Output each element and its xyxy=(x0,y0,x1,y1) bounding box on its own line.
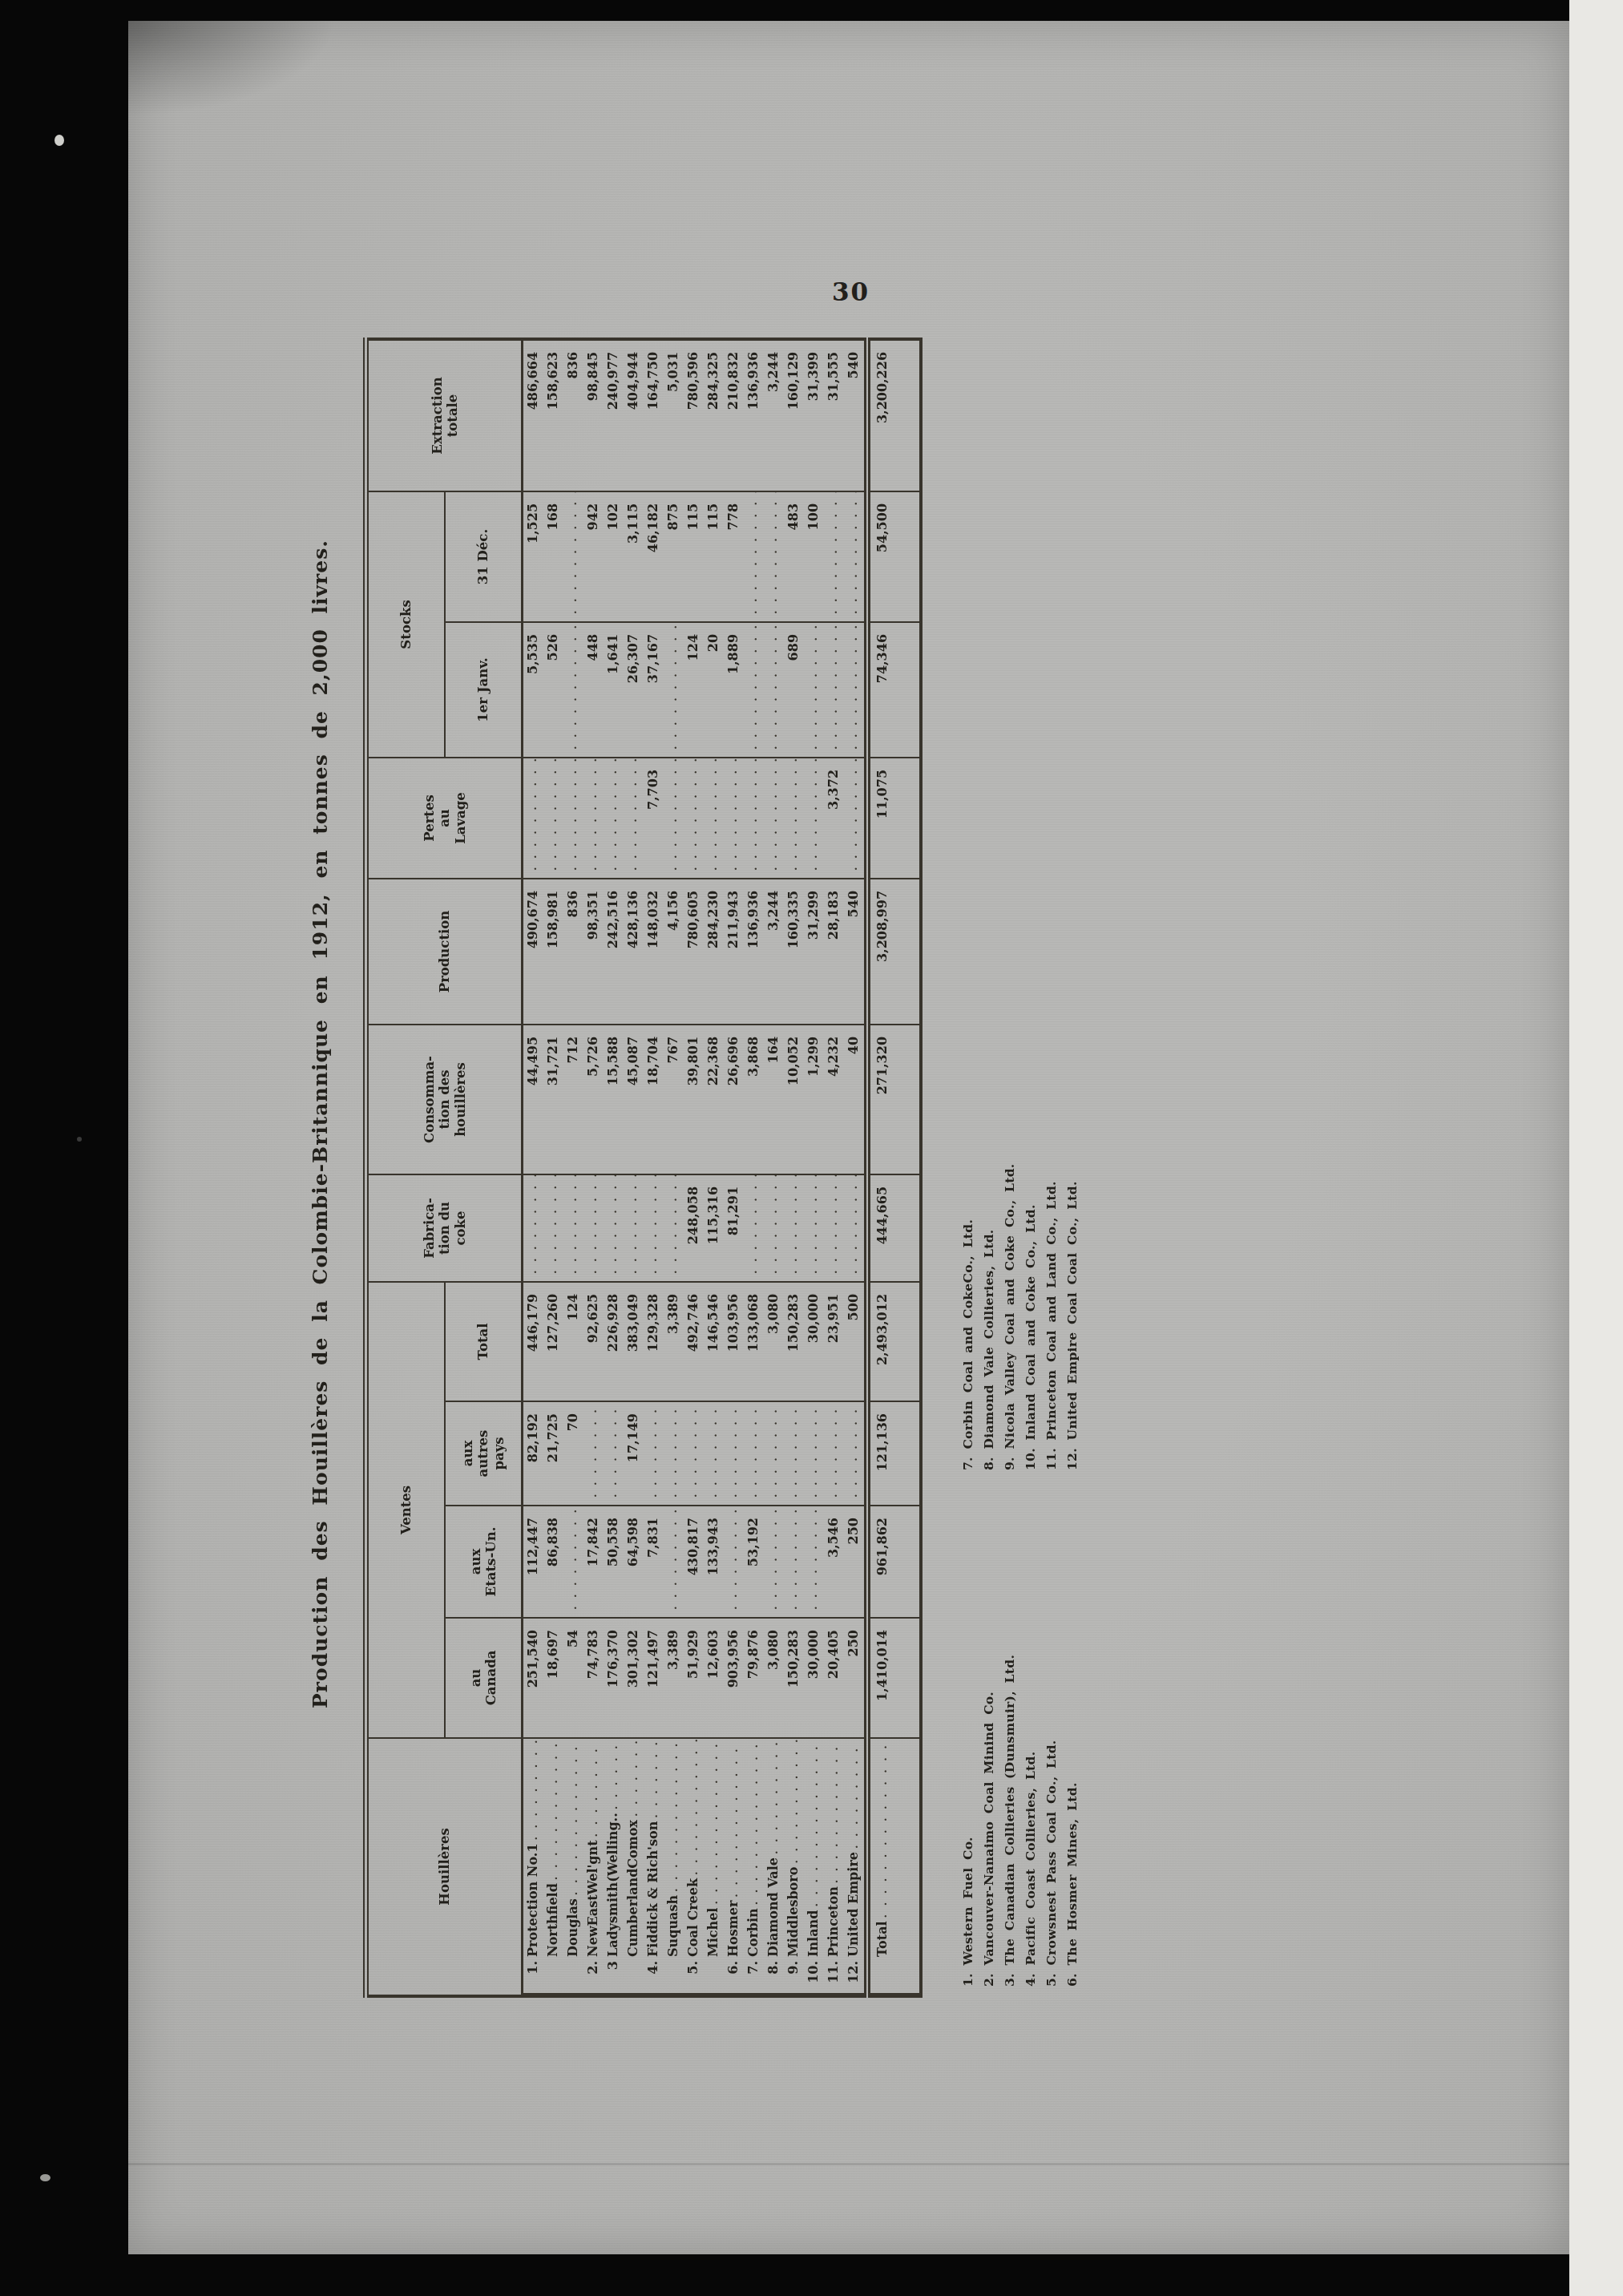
table-row: 4. Fiddick & Rich'son 121,497 7,831 129,… xyxy=(644,339,664,1996)
total-consommation: 271,320 xyxy=(867,1025,921,1174)
row-label-cell: CumberlandComox xyxy=(624,1739,644,1995)
scanned-page-photostat: { "page": { "number": "30" }, "title": "… xyxy=(0,0,1623,2296)
cell-aux-autres-pays xyxy=(764,1401,784,1506)
cell-total-ventes: 92,625 xyxy=(583,1282,604,1401)
cell-au-canada: 74,783 xyxy=(583,1618,604,1738)
cell-extraction: 284,325 xyxy=(704,339,724,491)
cell-31-dec: 483 xyxy=(784,491,804,622)
leader-dots xyxy=(564,1740,583,1898)
column-header-pertes: Pertes au Lavage xyxy=(366,758,523,879)
cell-1er-janv xyxy=(664,622,684,758)
cell-aux-etats-un xyxy=(724,1506,744,1618)
cell-production: 136,936 xyxy=(744,879,764,1025)
row-footnote-number: 1. xyxy=(524,1957,542,1990)
row-label-cell: Northfield xyxy=(543,1739,563,1995)
cell-production: 160,335 xyxy=(784,879,804,1025)
cell-production: 98,351 xyxy=(583,879,604,1025)
cell-coke xyxy=(624,1174,644,1282)
cell-aux-autres-pays: 82,192 xyxy=(523,1401,544,1506)
cell-au-canada: 3,389 xyxy=(664,1618,684,1738)
cell-aux-etats-un: 7,831 xyxy=(644,1506,664,1618)
cell-1er-janv: 526 xyxy=(543,622,563,758)
cell-aux-etats-un: 250 xyxy=(844,1506,867,1618)
cell-extraction: 486,664 xyxy=(523,339,544,491)
cell-pertes xyxy=(523,758,544,879)
cell-total-ventes: 127,260 xyxy=(543,1282,563,1401)
cell-coke xyxy=(824,1174,844,1282)
row-label-cell: 2. NewEastWel'gnt xyxy=(583,1739,604,1995)
row-label-cell: 9. Middlesboro xyxy=(784,1739,804,1995)
cell-1er-janv xyxy=(824,622,844,758)
cell-extraction: 98,845 xyxy=(583,339,604,491)
cell-consommation: 767 xyxy=(664,1025,684,1174)
cell-pertes: 7,703 xyxy=(644,758,664,879)
cell-1er-janv: 26,307 xyxy=(624,622,644,758)
cell-aux-etats-un xyxy=(804,1506,824,1618)
cell-pertes xyxy=(784,758,804,879)
footnote-column-2: 7. Corbin Coal and CokeCo., Ltd.8. Diamo… xyxy=(958,893,1083,1470)
cell-total-ventes: 500 xyxy=(844,1282,867,1401)
cell-aux-autres-pays xyxy=(844,1401,867,1506)
table-row: 3 Ladysmith(Welling.. 176,370 50,558 226… xyxy=(604,339,624,1996)
cell-au-canada: 20,405 xyxy=(824,1618,844,1738)
cell-1er-janv xyxy=(563,622,583,758)
cell-extraction: 780,596 xyxy=(684,339,704,491)
cell-aux-autres-pays xyxy=(724,1401,744,1506)
cell-consommation: 18,704 xyxy=(644,1025,664,1174)
cell-total-ventes: 23,951 xyxy=(824,1282,844,1401)
cell-1er-janv: 448 xyxy=(583,622,604,758)
cell-pertes xyxy=(844,758,867,879)
cell-consommation: 10,052 xyxy=(784,1025,804,1174)
leader-dots xyxy=(664,1740,683,1895)
cell-31-dec: 102 xyxy=(604,491,624,622)
leader-dots xyxy=(604,1740,623,1813)
leader-dots xyxy=(845,1740,863,1852)
row-label-cell: Douglas xyxy=(563,1739,583,1995)
cell-production: 780,605 xyxy=(684,879,704,1025)
cell-31-dec xyxy=(563,491,583,622)
cell-production: 428,136 xyxy=(624,879,644,1025)
row-footnote-number: 6. xyxy=(725,1957,742,1990)
leader-dots xyxy=(825,1740,843,1886)
total-1er-janv: 74,346 xyxy=(867,622,921,758)
cell-coke xyxy=(804,1174,824,1282)
leader-dots xyxy=(725,1740,743,1901)
footnote-line: 5. Crowsnest Pass Coal Co., Ltd. xyxy=(1041,1473,1062,1987)
cell-extraction: 136,936 xyxy=(744,339,764,491)
cell-1er-janv: 5,535 xyxy=(523,622,544,758)
cell-pertes xyxy=(583,758,604,879)
cell-consommation: 3,868 xyxy=(744,1025,764,1174)
group-header-stocks: Stocks xyxy=(366,491,446,758)
leader-dots xyxy=(584,1740,603,1840)
cell-aux-etats-un: 53,192 xyxy=(744,1506,764,1618)
cell-31-dec: 100 xyxy=(804,491,824,622)
footnote-line: 12. United Empire Coal Coal Co., Ltd. xyxy=(1062,893,1083,1470)
cell-coke xyxy=(543,1174,563,1282)
cell-aux-etats-un: 3,546 xyxy=(824,1506,844,1618)
cell-extraction: 31,399 xyxy=(804,339,824,491)
table-row: Douglas 54 70 124 712 836 836 xyxy=(563,339,583,1996)
footnote-line: 8. Diamond Vale Collieries, Ltd. xyxy=(979,893,999,1470)
leader-dots xyxy=(805,1740,823,1910)
leader-dots xyxy=(785,1740,803,1867)
cell-aux-autres-pays xyxy=(824,1401,844,1506)
total-ventes: 2,493,012 xyxy=(867,1282,921,1401)
cell-aux-etats-un: 133,943 xyxy=(704,1506,724,1618)
row-label-cell: 11. Princeton xyxy=(824,1739,844,1995)
cell-pertes xyxy=(664,758,684,879)
cell-consommation: 40 xyxy=(844,1025,867,1174)
cell-1er-janv: 1,641 xyxy=(604,622,624,758)
cell-consommation: 31,721 xyxy=(543,1025,563,1174)
mine-name: Princeton xyxy=(825,1886,842,1957)
leader-dots xyxy=(745,1740,763,1908)
cell-aux-etats-un: 86,838 xyxy=(543,1506,563,1618)
cell-coke xyxy=(644,1174,664,1282)
cell-coke xyxy=(844,1174,867,1282)
total-row: Total 1,410,014 961,862 121,136 2,493,01… xyxy=(867,339,921,1996)
cell-1er-janv: 124 xyxy=(684,622,704,758)
cell-pertes xyxy=(543,758,563,879)
cell-1er-janv xyxy=(764,622,784,758)
total-label: Total xyxy=(874,1921,891,1957)
cell-extraction: 210,832 xyxy=(724,339,744,491)
cell-total-ventes: 146,546 xyxy=(704,1282,724,1401)
table-row: 11. Princeton 20,405 3,546 23,951 4,232 … xyxy=(824,339,844,1996)
cell-production: 836 xyxy=(563,879,583,1025)
cell-extraction: 404,944 xyxy=(624,339,644,491)
footnote-line: 9. Nicola Valley Coal and Coke Co., Ltd. xyxy=(999,893,1020,1470)
row-label-cell: 7. Corbin xyxy=(744,1739,764,1995)
cell-consommation: 164 xyxy=(764,1025,784,1174)
cell-coke xyxy=(764,1174,784,1282)
scan-fold-line xyxy=(128,2163,1569,2165)
total-au-canada: 1,410,014 xyxy=(867,1618,921,1738)
column-header-houilleres: Houillères xyxy=(366,1738,523,1996)
mine-name: Diamond Vale xyxy=(765,1857,782,1957)
cell-consommation: 15,588 xyxy=(604,1025,624,1174)
cell-consommation: 44,495 xyxy=(523,1025,544,1174)
cell-au-canada: 150,283 xyxy=(784,1618,804,1738)
table-row: 10. Inland 30,000 30,000 1,299 31,299 10… xyxy=(804,339,824,1996)
scan-smudge xyxy=(128,21,337,117)
cell-aux-autres-pays xyxy=(684,1401,704,1506)
column-header-aux-etats-un: aux Etats-Un. xyxy=(445,1506,523,1618)
table-row: CumberlandComox 301,302 64,598 17,149 38… xyxy=(624,339,644,1996)
mine-name: Suquash xyxy=(664,1895,682,1957)
row-footnote-number: 10. xyxy=(805,1957,822,1990)
row-label-cell: Michel xyxy=(704,1739,724,1995)
cell-aux-autres-pays: 17,149 xyxy=(624,1401,644,1506)
cell-aux-etats-un: 112,447 xyxy=(523,1506,544,1618)
production-table: Houillères Ventes Fabrica- tion du coke … xyxy=(363,338,923,1998)
cell-31-dec: 875 xyxy=(664,491,684,622)
cell-production: 284,230 xyxy=(704,879,724,1025)
group-header-ventes: Ventes xyxy=(366,1282,446,1738)
cell-au-canada: 3,080 xyxy=(764,1618,784,1738)
cell-au-canada: 79,876 xyxy=(744,1618,764,1738)
cell-extraction: 160,129 xyxy=(784,339,804,491)
cell-aux-etats-un xyxy=(784,1506,804,1618)
cell-total-ventes: 226,928 xyxy=(604,1282,624,1401)
footnote-line: 7. Corbin Coal and CokeCo., Ltd. xyxy=(958,893,979,1470)
cell-aux-autres-pays xyxy=(664,1401,684,1506)
leader-dots xyxy=(765,1740,783,1857)
cell-total-ventes: 150,283 xyxy=(784,1282,804,1401)
scan-right-margin xyxy=(1569,0,1623,2296)
cell-production: 540 xyxy=(844,879,867,1025)
cell-aux-etats-un: 50,558 xyxy=(604,1506,624,1618)
cell-consommation: 4,232 xyxy=(824,1025,844,1174)
cell-31-dec xyxy=(764,491,784,622)
row-label-cell: 10. Inland xyxy=(804,1739,824,1995)
row-footnote-number: 11. xyxy=(825,1957,842,1990)
column-header-production: Production xyxy=(366,879,523,1025)
cell-production: 490,674 xyxy=(523,879,544,1025)
cell-au-canada: 54 xyxy=(563,1618,583,1738)
cell-coke xyxy=(563,1174,583,1282)
cell-total-ventes: 103,956 xyxy=(724,1282,744,1401)
footnote-line: 4. Pacific Coast Collieries, Ltd. xyxy=(1020,1473,1041,1987)
cell-pertes: 3,372 xyxy=(824,758,844,879)
mine-name: Corbin xyxy=(745,1908,762,1957)
row-label-cell: Suquash xyxy=(664,1739,684,1995)
mine-name: Ladysmith(Welling.. xyxy=(604,1813,622,1957)
cell-au-canada: 18,697 xyxy=(543,1618,563,1738)
leader-dots xyxy=(644,1740,663,1821)
cell-consommation: 45,087 xyxy=(624,1025,644,1174)
cell-coke: 248,058 xyxy=(684,1174,704,1282)
cell-au-canada: 121,497 xyxy=(644,1618,664,1738)
row-footnote-number: 9. xyxy=(785,1957,802,1990)
cell-aux-etats-un: 64,598 xyxy=(624,1506,644,1618)
cell-31-dec: 1,525 xyxy=(523,491,544,622)
cell-au-canada: 51,929 xyxy=(684,1618,704,1738)
cell-aux-autres-pays: 21,725 xyxy=(543,1401,563,1506)
table-row: 8. Diamond Vale 3,080 3,080 164 3,244 3,… xyxy=(764,339,784,1996)
page-number: 30 xyxy=(832,277,870,306)
cell-au-canada: 176,370 xyxy=(604,1618,624,1738)
row-label-cell: 6. Hosmer xyxy=(724,1739,744,1995)
cell-production: 242,516 xyxy=(604,879,624,1025)
cell-pertes xyxy=(624,758,644,879)
cell-aux-autres-pays xyxy=(704,1401,724,1506)
row-footnote-number: 7. xyxy=(745,1957,762,1990)
cell-aux-autres-pays: 70 xyxy=(563,1401,583,1506)
row-label-cell: 8. Diamond Vale xyxy=(764,1739,784,1995)
mine-name: Inland xyxy=(805,1910,822,1957)
total-31-dec: 54,500 xyxy=(867,491,921,622)
cell-coke xyxy=(604,1174,624,1282)
cell-production: 211,943 xyxy=(724,879,744,1025)
cell-1er-janv xyxy=(744,622,764,758)
cell-total-ventes: 133,068 xyxy=(744,1282,764,1401)
row-label-cell: 1. Protection No.1 xyxy=(523,1739,543,1995)
cell-1er-janv xyxy=(844,622,867,758)
mine-name: Protection No.1 xyxy=(524,1843,542,1957)
column-header-31-dec: 31 Déc. xyxy=(445,491,523,622)
cell-extraction: 240,977 xyxy=(604,339,624,491)
cell-31-dec xyxy=(824,491,844,622)
mine-name: Middlesboro xyxy=(785,1867,802,1957)
cell-1er-janv: 37,167 xyxy=(644,622,664,758)
cell-aux-autres-pays xyxy=(644,1401,664,1506)
cell-31-dec: 942 xyxy=(583,491,604,622)
row-footnote-number: 2. xyxy=(584,1957,602,1990)
footnote-line: 3. The Canadian Collieries (Dunsmuir), L… xyxy=(999,1473,1020,1987)
cell-au-canada: 903,956 xyxy=(724,1618,744,1738)
cell-consommation: 1,299 xyxy=(804,1025,824,1174)
row-footnote-number: 3 xyxy=(604,1957,622,1990)
cell-aux-etats-un xyxy=(764,1506,784,1618)
mine-name: Fiddick & Rich'son xyxy=(644,1821,662,1957)
cell-production: 4,156 xyxy=(664,879,684,1025)
cell-1er-janv: 1,889 xyxy=(724,622,744,758)
total-aux-etats-un: 961,862 xyxy=(867,1506,921,1618)
row-footnote-number: 5. xyxy=(684,1957,702,1990)
row-label-cell: 3 Ladysmith(Welling.. xyxy=(604,1739,624,1995)
footnote-line: 11. Princeton Coal and Land Co., Ltd. xyxy=(1041,893,1062,1470)
cell-au-canada: 301,302 xyxy=(624,1618,644,1738)
footnote-line: 6. The Hosmer Mines, Ltd. xyxy=(1062,1473,1083,1987)
cell-extraction: 158,623 xyxy=(543,339,563,491)
cell-31-dec: 46,182 xyxy=(644,491,664,622)
mine-name: CumberlandComox xyxy=(624,1820,642,1957)
cell-consommation: 5,726 xyxy=(583,1025,604,1174)
cell-production: 31,299 xyxy=(804,879,824,1025)
cell-pertes xyxy=(684,758,704,879)
cell-pertes xyxy=(724,758,744,879)
cell-aux-autres-pays xyxy=(804,1401,824,1506)
row-footnote-number: 12. xyxy=(845,1957,862,1990)
cell-total-ventes: 3,080 xyxy=(764,1282,784,1401)
cell-31-dec: 3,115 xyxy=(624,491,644,622)
column-header-consommation: Consomma- tion des houillères xyxy=(366,1025,523,1174)
cell-production: 148,032 xyxy=(644,879,664,1025)
cell-coke xyxy=(583,1174,604,1282)
leader-dots xyxy=(524,1740,543,1843)
table-row: 9. Middlesboro 150,283 150,283 10,052 16… xyxy=(784,339,804,1996)
cell-aux-etats-un: 17,842 xyxy=(583,1506,604,1618)
cell-aux-etats-un xyxy=(563,1506,583,1618)
table-row: Suquash 3,389 3,389 767 4,156 875 5,031 xyxy=(664,339,684,1996)
cell-coke: 81,291 xyxy=(724,1174,744,1282)
footnote-line: 2. Vancouver-Nanaimo Coal Minind Co. xyxy=(979,1473,999,1987)
mine-name: Coal Creek xyxy=(684,1878,702,1957)
cell-1er-janv: 20 xyxy=(704,622,724,758)
cell-au-canada: 250 xyxy=(844,1618,867,1738)
cell-31-dec: 115 xyxy=(684,491,704,622)
cell-pertes xyxy=(704,758,724,879)
column-header-coke: Fabrica- tion du coke xyxy=(366,1174,523,1282)
cell-coke xyxy=(784,1174,804,1282)
cell-aux-etats-un: 430,817 xyxy=(684,1506,704,1618)
cell-total-ventes: 129,328 xyxy=(644,1282,664,1401)
table-row: 2. NewEastWel'gnt 74,783 17,842 92,625 5… xyxy=(583,339,604,1996)
cell-total-ventes: 446,179 xyxy=(523,1282,544,1401)
cell-production: 3,244 xyxy=(764,879,784,1025)
table-row: 5. Coal Creek 51,929 430,817 492,746 248… xyxy=(684,339,704,1996)
cell-31-dec xyxy=(844,491,867,622)
total-production: 3,208,997 xyxy=(867,879,921,1025)
total-coke: 444,665 xyxy=(867,1174,921,1282)
cell-31-dec: 115 xyxy=(704,491,724,622)
cell-consommation: 22,368 xyxy=(704,1025,724,1174)
cell-total-ventes: 124 xyxy=(563,1282,583,1401)
column-header-au-canada: au Canada xyxy=(445,1618,523,1738)
cell-coke xyxy=(523,1174,544,1282)
leader-dots xyxy=(705,1740,723,1908)
cell-aux-autres-pays xyxy=(604,1401,624,1506)
leader-dots xyxy=(624,1740,643,1820)
table-row: 7. Corbin 79,876 53,192 133,068 3,868 13… xyxy=(744,339,764,1996)
rotated-table-block: Production des Houillères de la Colombie… xyxy=(309,338,1062,1998)
cell-31-dec: 168 xyxy=(543,491,563,622)
cell-pertes xyxy=(563,758,583,879)
cell-31-dec: 778 xyxy=(724,491,744,622)
cell-extraction: 3,244 xyxy=(764,339,784,491)
row-label-cell: 4. Fiddick & Rich'son xyxy=(644,1739,664,1995)
cell-total-ventes: 3,389 xyxy=(664,1282,684,1401)
row-footnote-number: 8. xyxy=(765,1957,782,1990)
cell-consommation: 39,801 xyxy=(684,1025,704,1174)
row-label-cell: 12. United Empire xyxy=(844,1739,864,1995)
footnote-column-1: 1. Western Fuel Co.2. Vancouver-Nanaimo … xyxy=(958,1473,1083,1987)
cell-extraction: 164,750 xyxy=(644,339,664,491)
leader-dots xyxy=(874,1740,892,1921)
cell-aux-autres-pays xyxy=(784,1401,804,1506)
cell-pertes xyxy=(764,758,784,879)
cell-aux-etats-un xyxy=(664,1506,684,1618)
mine-name: Douglas xyxy=(564,1898,582,1957)
table-row: Northfield 18,697 86,838 21,725 127,260 … xyxy=(543,339,563,1996)
cell-aux-autres-pays xyxy=(583,1401,604,1506)
row-label-cell: 5. Coal Creek xyxy=(684,1739,704,1995)
mine-name: Hosmer xyxy=(725,1901,742,1957)
cell-coke xyxy=(664,1174,684,1282)
cell-coke xyxy=(744,1174,764,1282)
cell-1er-janv xyxy=(804,622,824,758)
table-title: Production des Houillères de la Colombie… xyxy=(309,294,344,1954)
leader-dots xyxy=(684,1740,703,1878)
cell-aux-autres-pays xyxy=(744,1401,764,1506)
footnotes: 1. Western Fuel Co.2. Vancouver-Nanaimo … xyxy=(958,338,1094,1998)
column-header-total-ventes: Total xyxy=(445,1282,523,1401)
cell-consommation: 26,696 xyxy=(724,1025,744,1174)
table-row: 1. Protection No.1 251,540 112,447 82,19… xyxy=(523,339,544,1996)
cell-production: 28,183 xyxy=(824,879,844,1025)
cell-au-canada: 12,603 xyxy=(704,1618,724,1738)
scan-fleck xyxy=(40,2174,50,2181)
cell-au-canada: 30,000 xyxy=(804,1618,824,1738)
mine-name: Northfield xyxy=(544,1883,562,1957)
cell-extraction: 836 xyxy=(563,339,583,491)
footnote-line: 10. Inland Coal and Coke Co., Ltd. xyxy=(1020,893,1041,1470)
cell-pertes xyxy=(604,758,624,879)
column-header-extraction: Extraction totale xyxy=(366,339,523,491)
total-aux-autres-pays: 121,136 xyxy=(867,1401,921,1506)
total-pertes: 11,075 xyxy=(867,758,921,879)
cell-1er-janv: 689 xyxy=(784,622,804,758)
cell-consommation: 712 xyxy=(563,1025,583,1174)
total-extraction: 3,200,226 xyxy=(867,339,921,491)
table-row: 6. Hosmer 903,956 103,956 81,291 26,696 … xyxy=(724,339,744,1996)
cell-production: 158,981 xyxy=(543,879,563,1025)
cell-total-ventes: 383,049 xyxy=(624,1282,644,1401)
cell-au-canada: 251,540 xyxy=(523,1618,544,1738)
